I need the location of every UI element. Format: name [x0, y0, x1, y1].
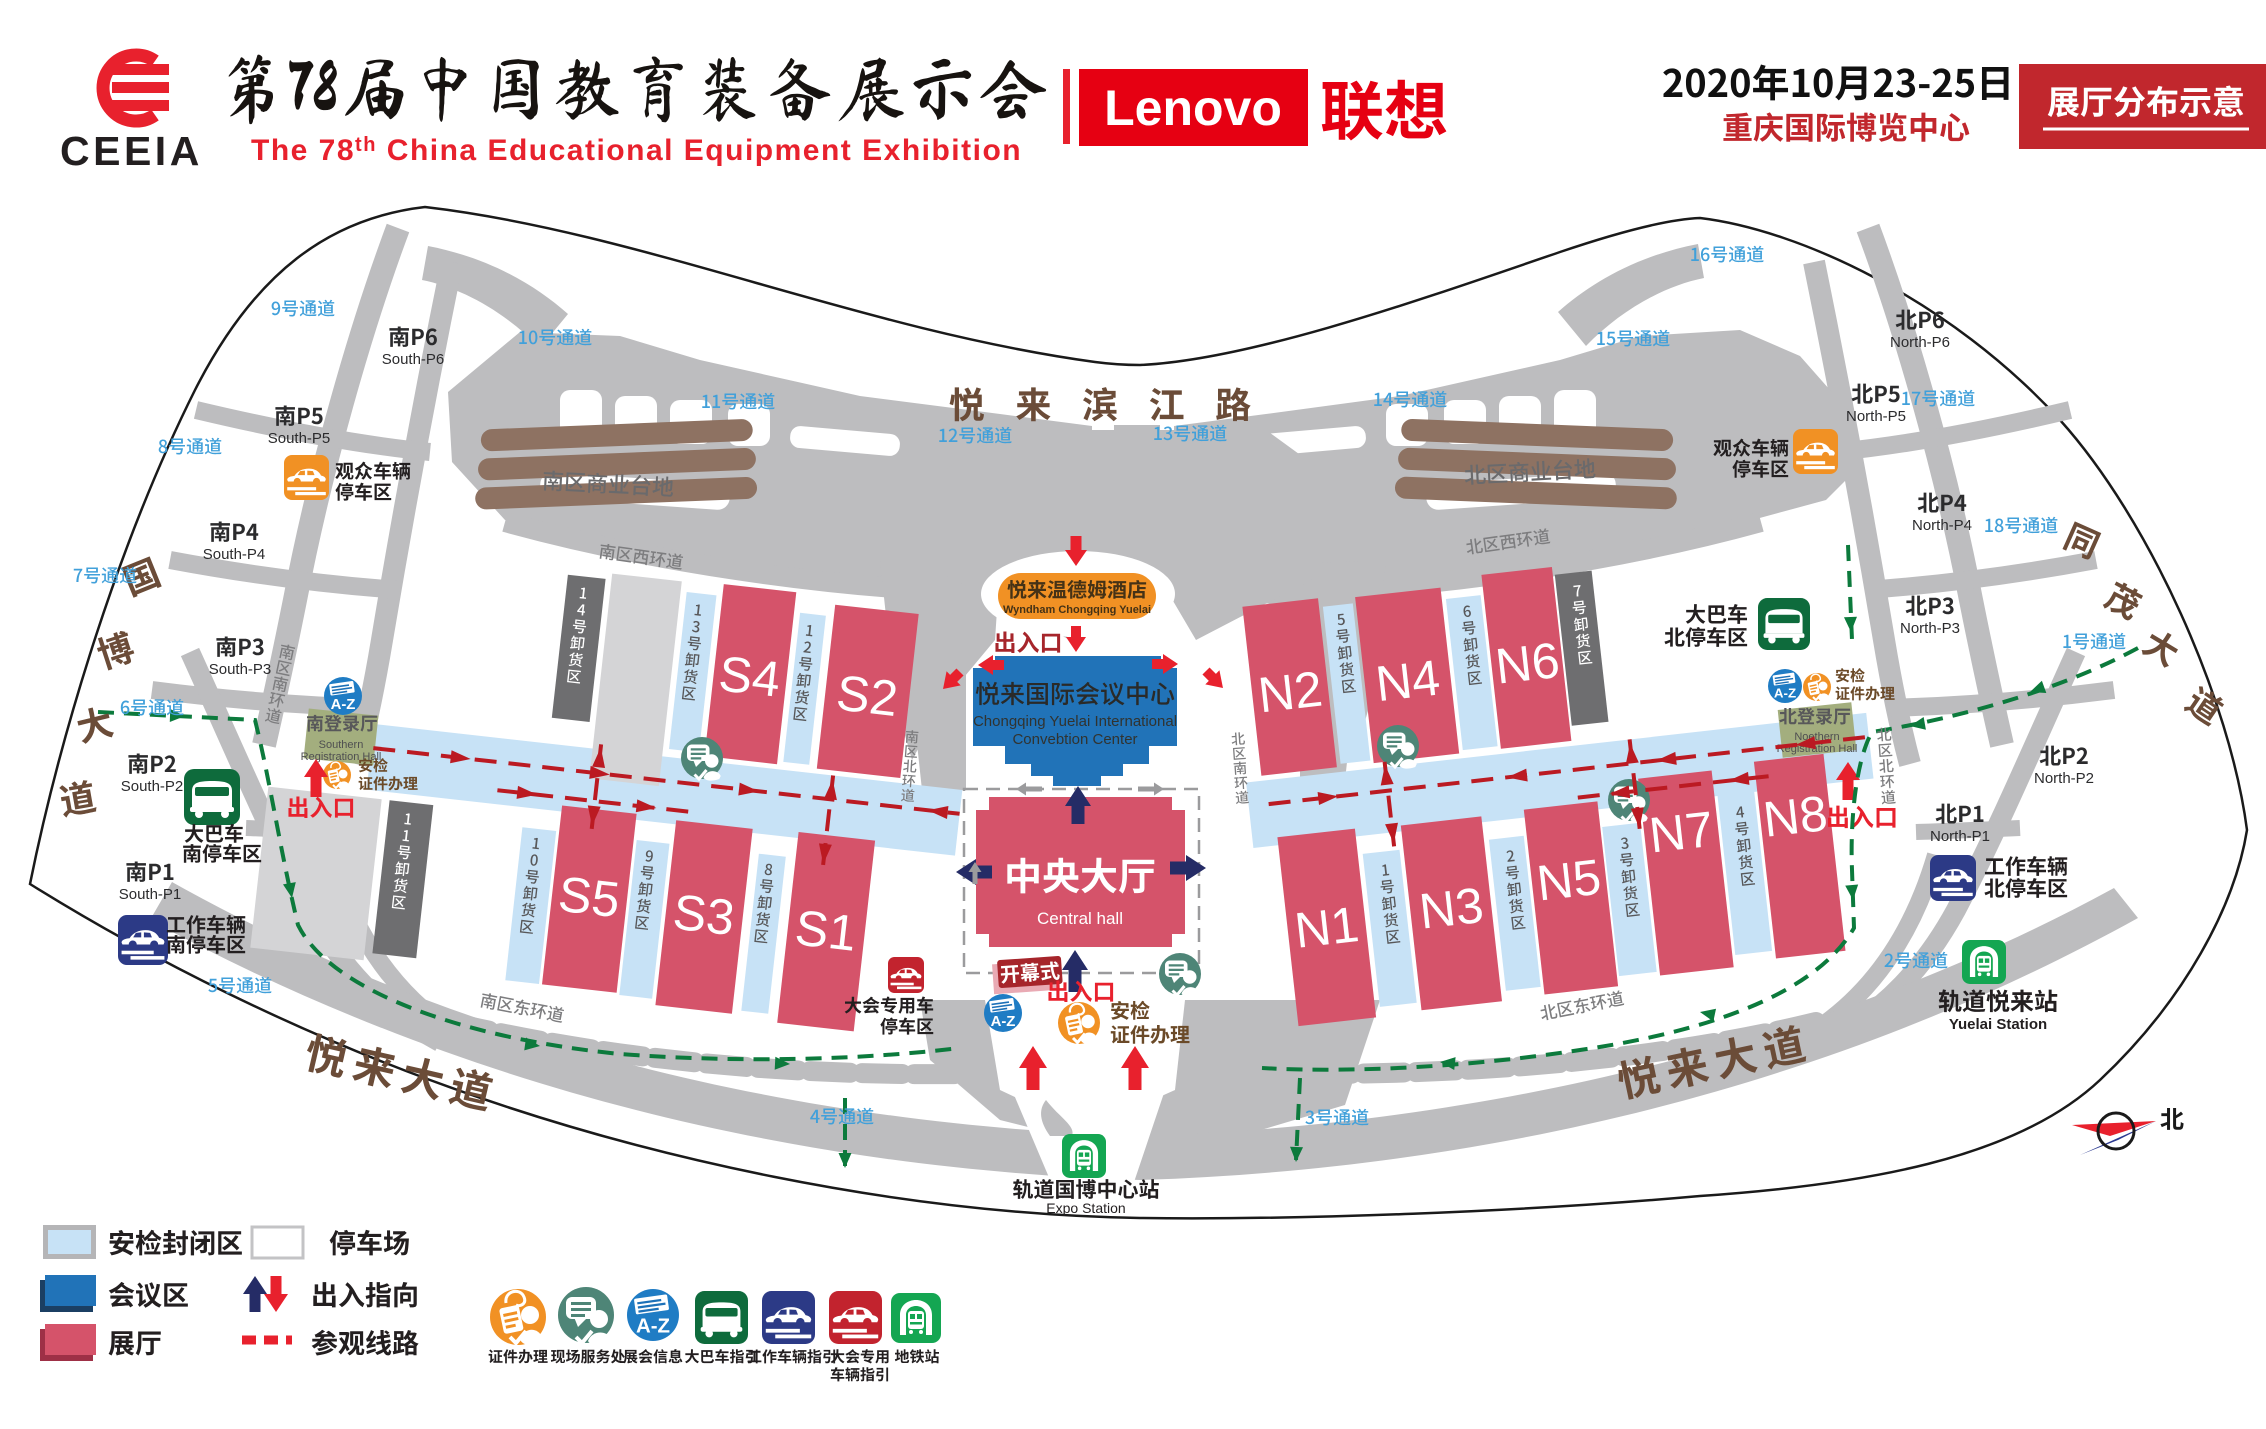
- svg-text:North-P5: North-P5: [1846, 408, 1906, 425]
- svg-text:Convebtion Center: Convebtion Center: [1012, 731, 1137, 748]
- svg-text:South-P4: South-P4: [203, 546, 266, 563]
- svg-text:South-P3: South-P3: [209, 661, 272, 678]
- svg-text:N3: N3: [1417, 877, 1487, 940]
- svg-text:N2: N2: [1255, 661, 1325, 724]
- svg-text:N5: N5: [1534, 849, 1604, 912]
- svg-text:Southern: Southern: [319, 739, 364, 751]
- svg-text:CEEIA: CEEIA: [60, 128, 203, 174]
- svg-text:N7: N7: [1646, 801, 1716, 864]
- svg-text:S2: S2: [834, 665, 901, 727]
- svg-text:Expo Station: Expo Station: [1046, 1200, 1125, 1216]
- svg-text:South-P6: South-P6: [382, 351, 445, 368]
- svg-text:South-P2: South-P2: [121, 778, 184, 795]
- svg-text:North-P2: North-P2: [2034, 770, 2094, 787]
- svg-text:South-P1: South-P1: [119, 886, 182, 903]
- svg-text:S5: S5: [556, 866, 623, 928]
- svg-text:N6: N6: [1493, 632, 1563, 695]
- svg-text:Wyndham Chongqing Yuelai: Wyndham Chongqing Yuelai: [1003, 604, 1151, 616]
- svg-text:S3: S3: [670, 884, 737, 946]
- svg-text:North-P6: North-P6: [1890, 334, 1950, 351]
- svg-text:Yuelai Station: Yuelai Station: [1949, 1016, 2047, 1033]
- svg-text:North-P1: North-P1: [1930, 828, 1990, 845]
- svg-text:South-P5: South-P5: [268, 430, 331, 447]
- svg-text:N4: N4: [1373, 649, 1443, 712]
- svg-text:S4: S4: [716, 645, 783, 707]
- svg-text:North-P3: North-P3: [1900, 620, 1960, 637]
- svg-text:Chongqing Yuelai International: Chongqing Yuelai International: [973, 713, 1177, 730]
- svg-text:N8: N8: [1760, 785, 1830, 848]
- svg-text:A-Z: A-Z: [991, 1013, 1016, 1030]
- svg-text:North-P4: North-P4: [1912, 517, 1972, 534]
- svg-text:The 78th China Educational E: The 78th China Educational Equipment Exh…: [251, 134, 1022, 167]
- svg-text:Central hall: Central hall: [1037, 909, 1123, 928]
- svg-text:N1: N1: [1292, 896, 1362, 959]
- svg-text:A-Z: A-Z: [1774, 686, 1796, 701]
- svg-text:S1: S1: [792, 899, 859, 961]
- svg-text:A-Z: A-Z: [636, 1316, 670, 1338]
- svg-text:Lenovo: Lenovo: [1104, 80, 1282, 136]
- svg-text:A-Z: A-Z: [331, 696, 356, 713]
